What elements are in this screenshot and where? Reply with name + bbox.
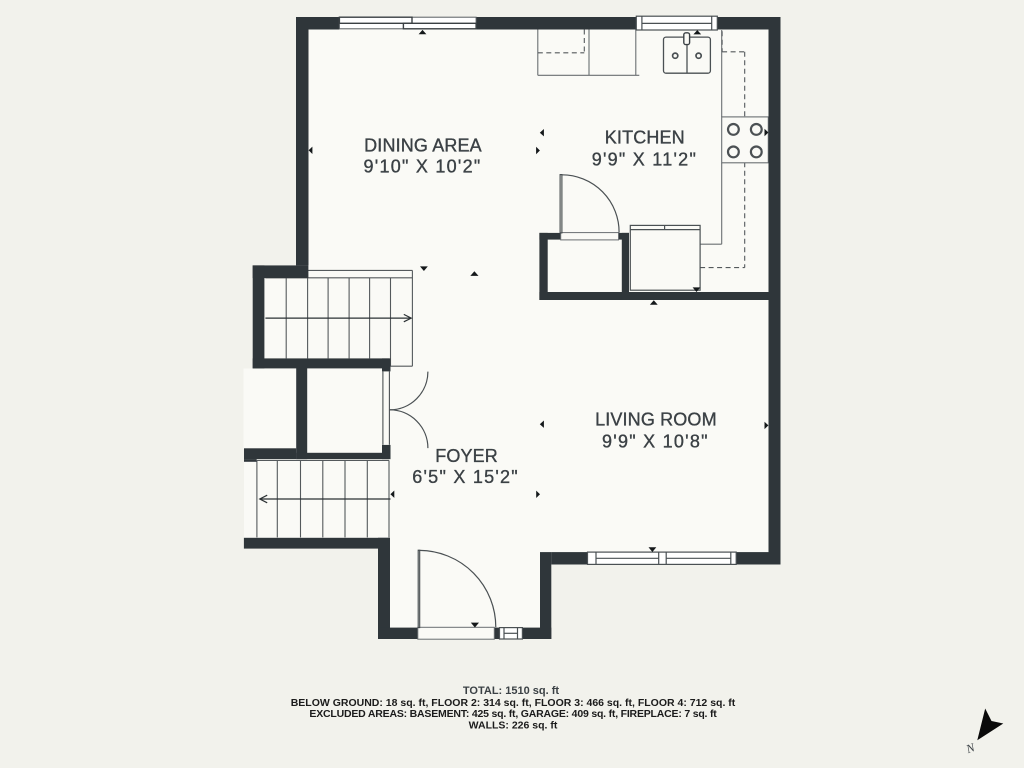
svg-text:6'5" X 15'2": 6'5" X 15'2" [412,467,519,487]
svg-text:BELOW GROUND: 18 sq. ft, FLOOR: BELOW GROUND: 18 sq. ft, FLOOR 2: 314 sq… [291,697,736,709]
svg-text:9'9" X 11'2": 9'9" X 11'2" [592,150,697,170]
svg-text:WALLS: 226 sq. ft: WALLS: 226 sq. ft [469,720,558,732]
svg-text:DINING AREA: DINING AREA [364,135,482,155]
svg-text:KITCHEN: KITCHEN [605,128,685,148]
svg-text:FOYER: FOYER [435,446,498,466]
svg-text:EXCLUDED AREAS: BASEMENT: 425: EXCLUDED AREAS: BASEMENT: 425 sq. ft, GA… [309,708,717,720]
svg-text:LIVING ROOM: LIVING ROOM [595,410,717,430]
svg-text:9'10" X 10'2": 9'10" X 10'2" [364,156,482,176]
svg-text:TOTAL: 1510 sq. ft: TOTAL: 1510 sq. ft [463,685,560,697]
svg-text:9'9" X 10'8": 9'9" X 10'8" [602,432,709,452]
